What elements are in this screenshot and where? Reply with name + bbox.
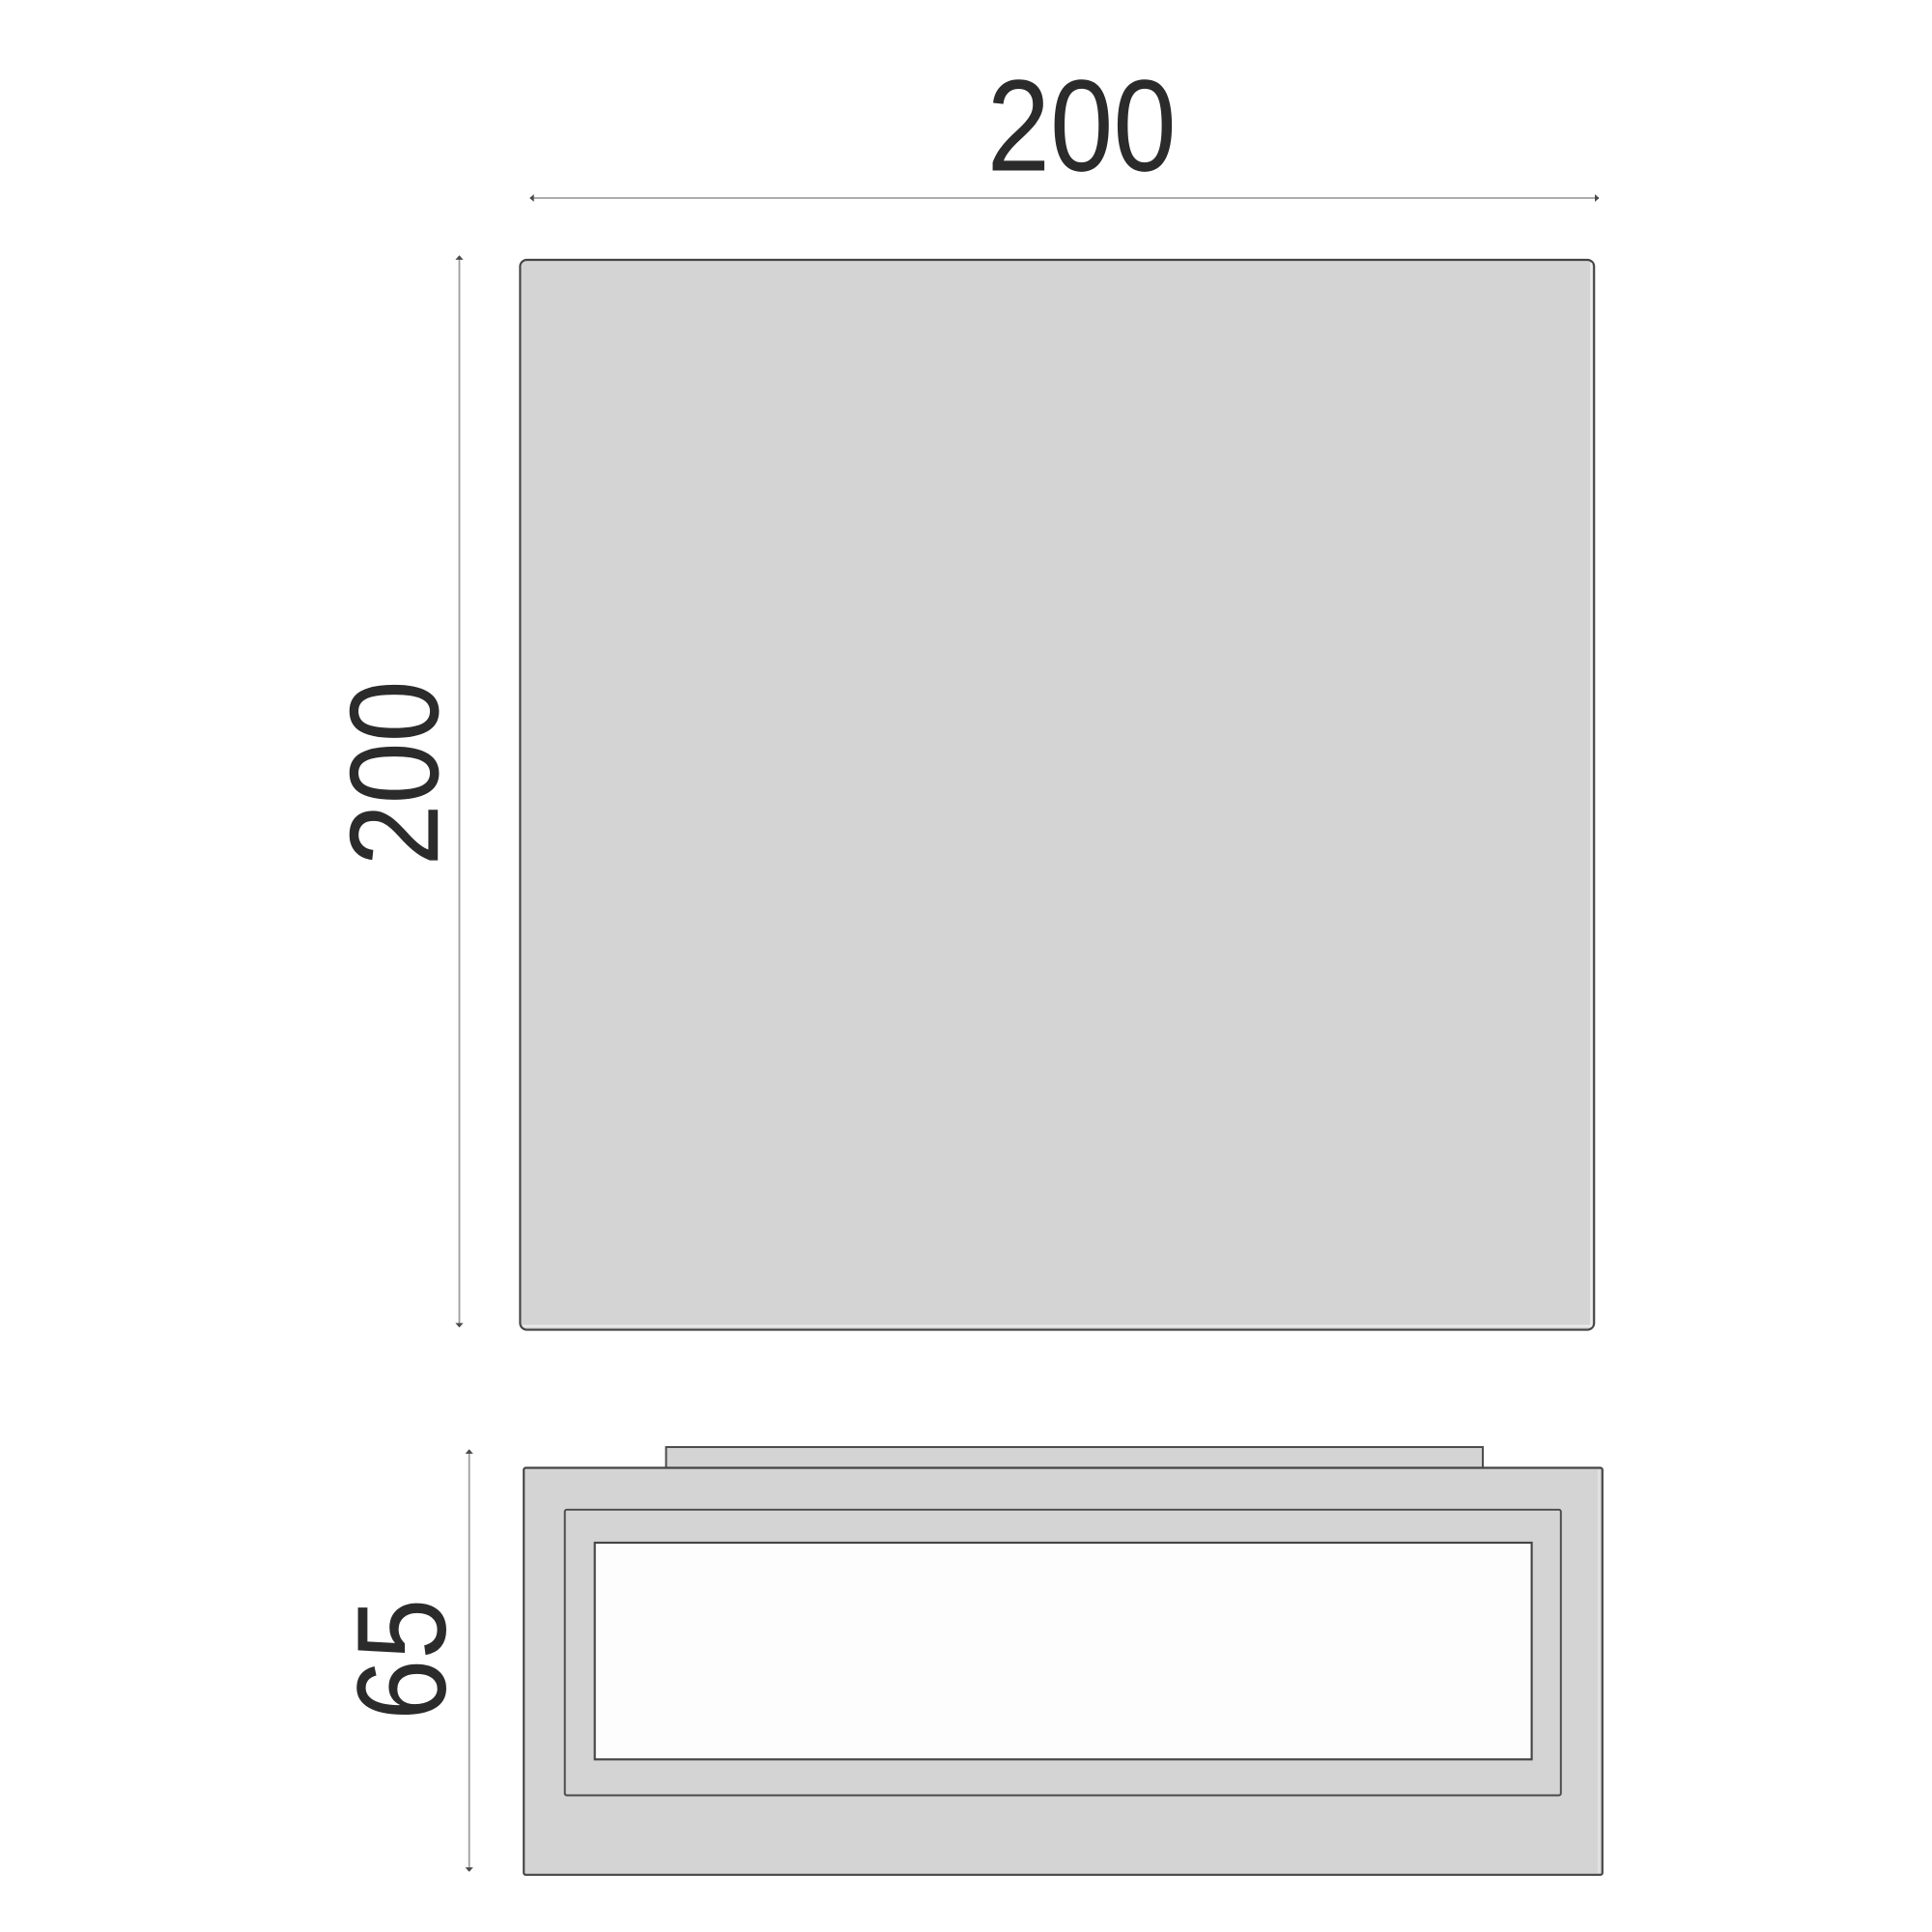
svg-text:200: 200 [987,53,1177,199]
svg-text:65: 65 [330,1599,472,1720]
svg-text:200: 200 [323,680,465,866]
